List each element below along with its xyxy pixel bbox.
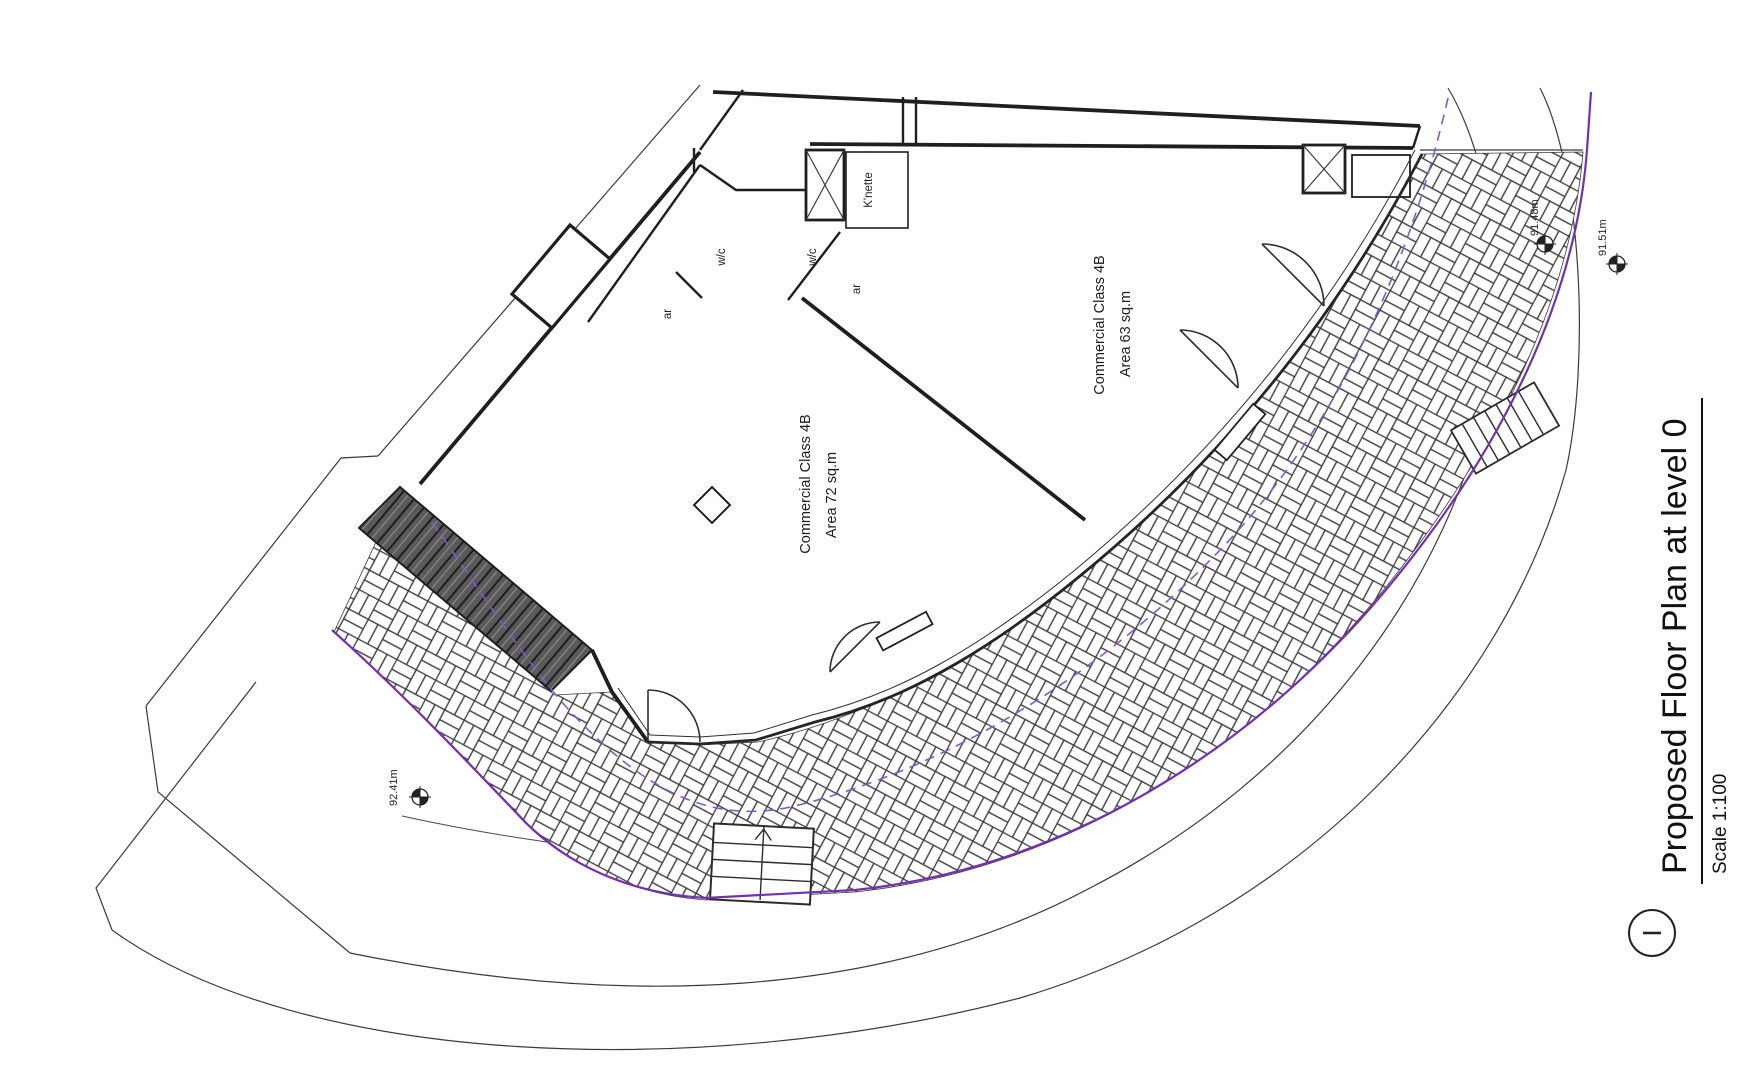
level-value: 92.41m [388, 769, 400, 806]
room-labels: Commercial Class 4B Area 72 sq.m Commerc… [662, 172, 1134, 553]
floor-plan-page: 92.41m 91.48m 91.51m Commercial Class 4B… [0, 0, 1755, 1080]
room1-class-label: Commercial Class 4B [798, 414, 814, 553]
kitchenette-room [846, 152, 908, 228]
floor-plan-drawing: 92.41m 91.48m 91.51m Commercial Class 4B… [0, 0, 1755, 1080]
level-marker-91-51: 91.51m [1597, 219, 1628, 275]
paving-hatch [334, 152, 1583, 900]
scale-label: Scale 1:100 [1710, 774, 1731, 874]
drawing-title: Proposed Floor Plan at level 0 [1656, 419, 1694, 874]
title-block: Proposed Floor Plan at level 0 Scale 1:1… [1629, 398, 1731, 956]
kitchenette-label: K'nette [863, 172, 875, 207]
room1-area-label: Area 72 sq.m [824, 452, 840, 538]
ar-right-label: ar [851, 284, 863, 294]
paved-area [334, 152, 1583, 900]
duct-shaft-left [806, 150, 844, 220]
drawing-number-bubble [1629, 910, 1675, 956]
wc-right-label: w/c [807, 248, 819, 267]
room2-area-label: Area 63 sq.m [1118, 291, 1134, 377]
wc-left-label: w/c [716, 248, 728, 267]
door-leaf [877, 612, 933, 651]
level-value: 91.48m [1529, 199, 1541, 236]
level-value: 91.51m [1597, 219, 1609, 256]
column-diamond [694, 487, 730, 523]
room2-class-label: Commercial Class 4B [1092, 255, 1108, 394]
ar-left-label: ar [662, 309, 674, 319]
level-marker-92-41: 92.41m [388, 769, 431, 808]
